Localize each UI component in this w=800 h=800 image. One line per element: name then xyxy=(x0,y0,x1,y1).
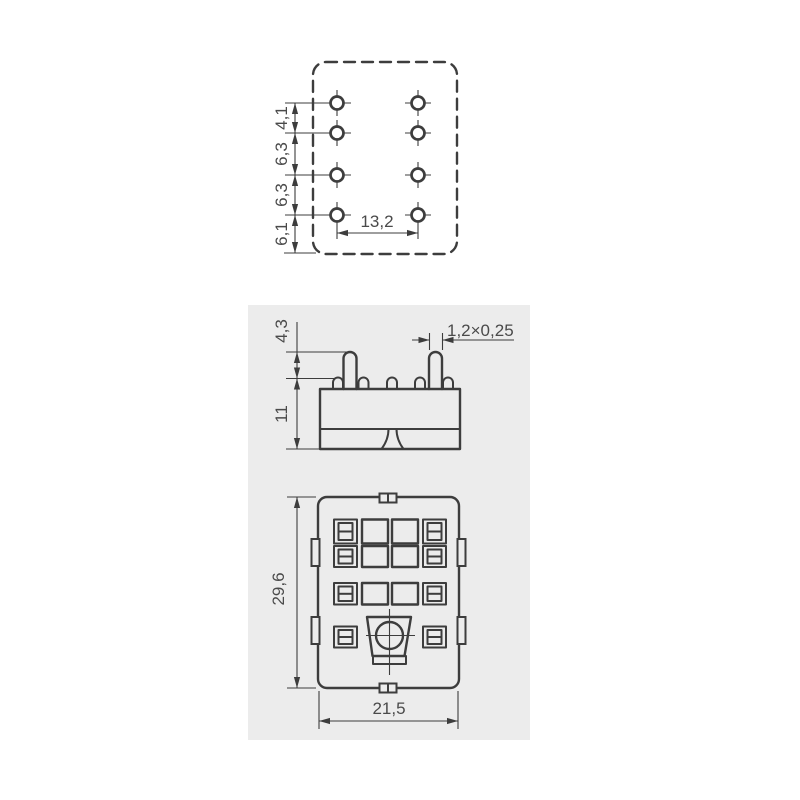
dim-label-front-width: 21,5 xyxy=(372,699,405,718)
centerlines xyxy=(284,90,431,253)
pin-hole xyxy=(412,97,425,110)
pin-hole xyxy=(412,209,425,222)
dim-label-front-height: 29,6 xyxy=(269,572,288,605)
dim-label-pitch-1: 4,1 xyxy=(272,106,291,130)
relay-socket-drawing: 4,1 6,3 6,3 6,1 13,2 xyxy=(0,0,800,800)
dim-label-pin-height: 4,3 xyxy=(272,319,291,343)
dim-label-pitch-4: 6,1 xyxy=(272,222,291,246)
pin-hole xyxy=(331,209,344,222)
pin-holes xyxy=(331,97,425,222)
pin-hole xyxy=(331,169,344,182)
dim-label-pitch-2: 6,3 xyxy=(272,142,291,166)
dim-label-body-height: 11 xyxy=(272,405,291,423)
pin-hole xyxy=(412,127,425,140)
pin-hole xyxy=(331,97,344,110)
technical-drawing-page: 4,1 6,3 6,3 6,1 13,2 xyxy=(0,0,800,800)
dim-label-pin-section: 1,2×0,25 xyxy=(447,321,514,340)
top-view-pin-layout: 4,1 6,3 6,3 6,1 13,2 xyxy=(272,62,457,254)
dim-label-pitch-3: 6,3 xyxy=(272,183,291,207)
dim-label-column-span: 13,2 xyxy=(360,212,393,231)
pin-hole xyxy=(412,169,425,182)
pin-hole xyxy=(331,127,344,140)
